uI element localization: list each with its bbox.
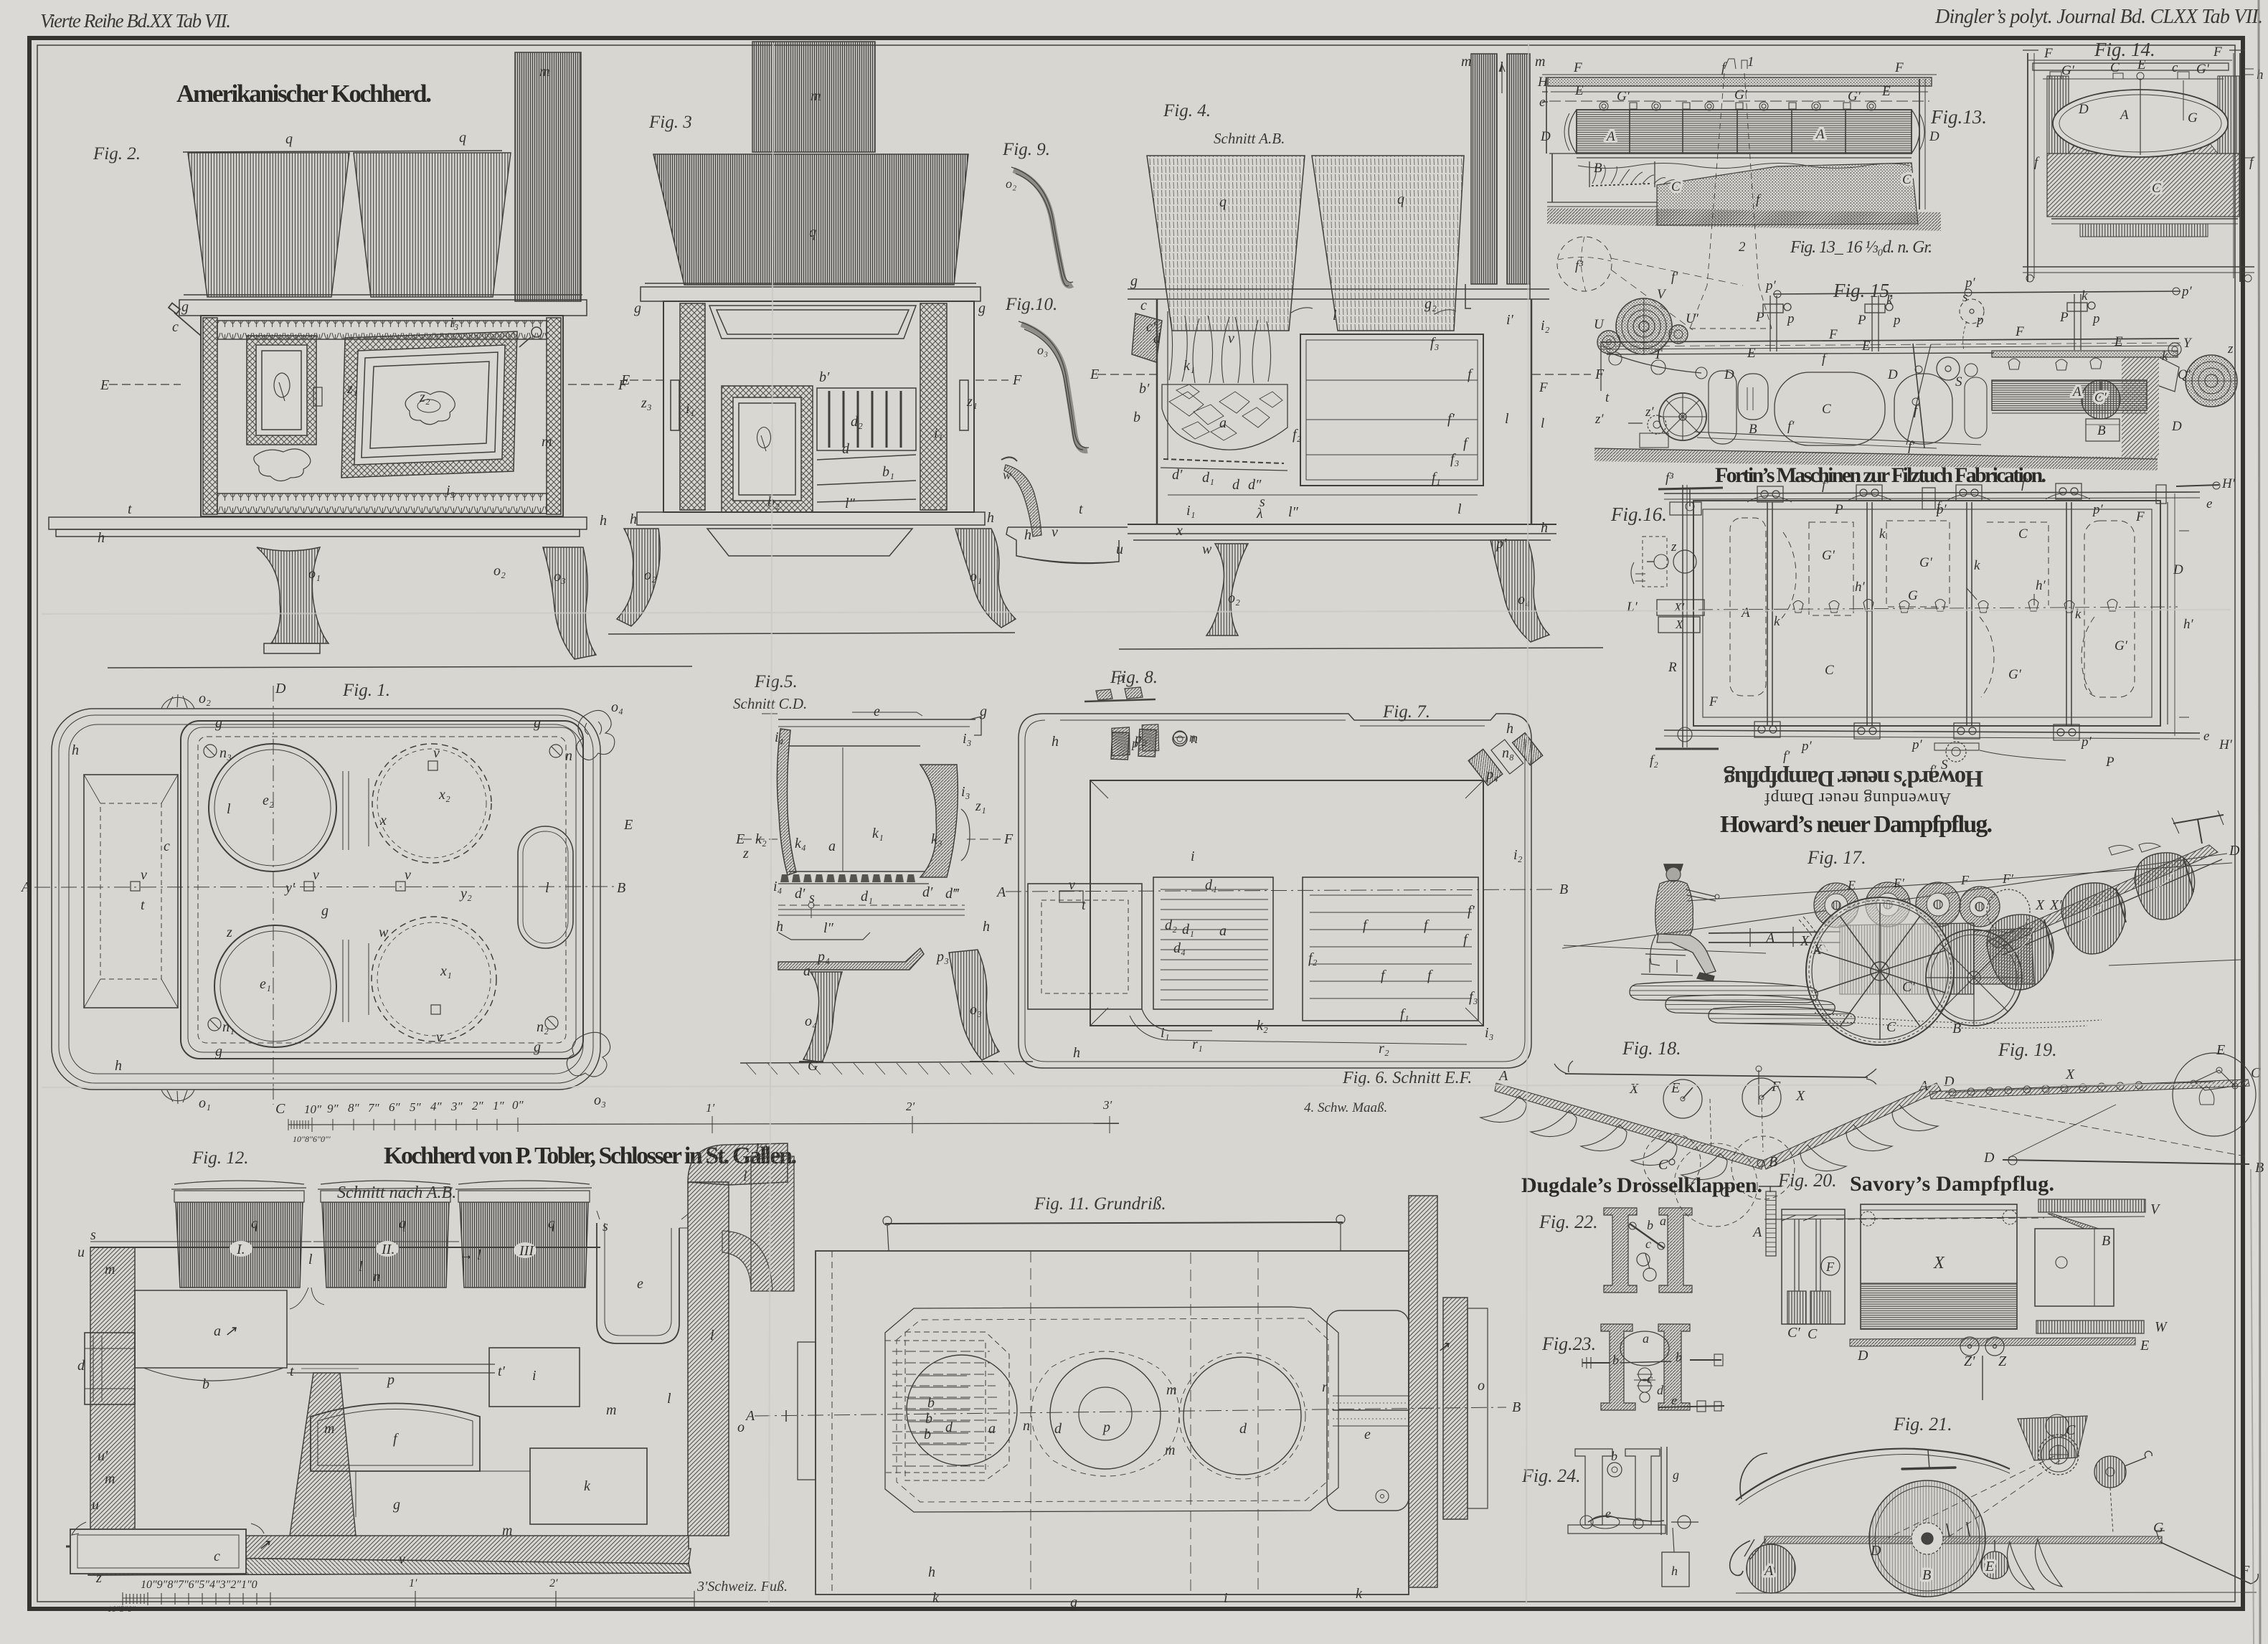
svg-text:k: k bbox=[1356, 1586, 1363, 1602]
svg-text:D: D bbox=[1857, 1348, 1868, 1364]
svg-text:b₁: b₁ bbox=[882, 464, 894, 480]
svg-text:f′: f′ bbox=[1783, 749, 1790, 764]
svg-text:q: q bbox=[1397, 192, 1404, 207]
svg-text:↗: ↗ bbox=[258, 1537, 270, 1553]
svg-text:e₂: e₂ bbox=[263, 793, 274, 808]
svg-text:F: F bbox=[1594, 367, 1605, 382]
svg-text:l″: l″ bbox=[845, 496, 856, 511]
svg-text:m: m bbox=[606, 1402, 616, 1418]
svg-text:B: B bbox=[1749, 422, 1757, 437]
svg-text:i₁: i₁ bbox=[1186, 503, 1196, 519]
svg-text:n: n bbox=[565, 748, 572, 764]
svg-text:Fig.10.: Fig.10. bbox=[1005, 295, 1057, 314]
svg-text:B: B bbox=[1922, 1567, 1931, 1583]
svg-text:p: p bbox=[1116, 670, 1124, 684]
svg-text:t: t bbox=[1082, 897, 1086, 913]
svg-text:f₁: f₁ bbox=[1432, 470, 1441, 486]
svg-text:h: h bbox=[1024, 527, 1031, 543]
svg-text:E: E bbox=[1881, 84, 1891, 99]
svg-text:i₂: i₂ bbox=[1541, 318, 1550, 334]
svg-text:d: d bbox=[1153, 331, 1161, 346]
svg-text:t′: t′ bbox=[498, 1364, 506, 1379]
svg-text:C: C bbox=[2110, 60, 2120, 75]
svg-text:Fig. 12.: Fig. 12. bbox=[192, 1148, 248, 1168]
svg-text:l: l bbox=[308, 1252, 313, 1267]
svg-text:h: h bbox=[1052, 734, 1059, 750]
svg-text:f³: f³ bbox=[1665, 471, 1673, 486]
svg-text:u′: u′ bbox=[98, 1448, 108, 1464]
svg-text:d′: d′ bbox=[795, 886, 805, 902]
svg-text:p′: p′ bbox=[1764, 278, 1777, 293]
svg-text:d₁: d₁ bbox=[1205, 877, 1217, 893]
svg-text:o: o bbox=[1478, 1378, 1485, 1394]
svg-text:G′: G′ bbox=[1617, 89, 1630, 104]
svg-text:10″5″0″: 10″5″0″ bbox=[108, 1604, 136, 1614]
svg-text:f′: f′ bbox=[1822, 478, 1829, 493]
svg-text:Fig. 20.: Fig. 20. bbox=[1777, 1170, 1837, 1191]
svg-text:III: III bbox=[519, 1243, 534, 1259]
svg-text:A: A bbox=[20, 879, 31, 895]
svg-text:p: p bbox=[1102, 1419, 1110, 1435]
svg-text:Schnitt nach A.B.: Schnitt nach A.B. bbox=[337, 1184, 456, 1202]
svg-text:c: c bbox=[172, 319, 179, 335]
svg-text:i₃: i₃ bbox=[963, 731, 972, 747]
svg-text:l ↑: l ↑ bbox=[755, 1141, 770, 1157]
svg-text:Fig. 22.: Fig. 22. bbox=[1539, 1211, 1598, 1232]
svg-text:Schnitt A.B.: Schnitt A.B. bbox=[1214, 130, 1285, 147]
svg-text:Z: Z bbox=[1998, 1354, 2007, 1369]
svg-text:0″: 0″ bbox=[512, 1098, 524, 1112]
svg-text:F: F bbox=[1894, 60, 1904, 75]
svg-text:m: m bbox=[105, 1471, 115, 1487]
svg-text:G′: G′ bbox=[2115, 638, 2128, 653]
svg-text:X′: X′ bbox=[1673, 600, 1684, 614]
svg-text:F: F bbox=[1573, 60, 1582, 75]
svg-text:T: T bbox=[1654, 347, 1663, 362]
svg-text:v: v bbox=[1228, 331, 1234, 346]
svg-text:P: P bbox=[2059, 310, 2069, 325]
svg-text:l: l bbox=[1499, 60, 1503, 75]
svg-text:F: F bbox=[2135, 509, 2145, 524]
svg-text:i′: i′ bbox=[1506, 312, 1514, 328]
svg-text:s: s bbox=[603, 1219, 608, 1234]
svg-text:C′: C′ bbox=[2094, 390, 2107, 405]
svg-text:a: a bbox=[1660, 1214, 1666, 1228]
svg-text:i₄: i₄ bbox=[773, 879, 783, 894]
svg-text:E: E bbox=[2140, 1338, 2149, 1354]
svg-text:E: E bbox=[620, 372, 630, 388]
svg-text:Fig. 7.: Fig. 7. bbox=[1382, 702, 1430, 722]
svg-text:Fig. 6. Schnitt E.F.: Fig. 6. Schnitt E.F. bbox=[1342, 1069, 1472, 1087]
svg-text:Fig. 1.: Fig. 1. bbox=[342, 681, 390, 700]
svg-text:A: A bbox=[2119, 108, 2129, 123]
svg-text:D: D bbox=[1887, 367, 1898, 382]
svg-text:e: e bbox=[2206, 496, 2212, 511]
svg-text:F: F bbox=[1709, 694, 1718, 709]
svg-text:6″: 6″ bbox=[389, 1100, 401, 1114]
svg-text:i₃: i₃ bbox=[446, 483, 455, 499]
svg-text:E: E bbox=[623, 817, 633, 833]
svg-text:A: A bbox=[1815, 127, 1825, 142]
svg-text:y₂: y₂ bbox=[459, 886, 472, 902]
svg-text:b₂: b₂ bbox=[767, 494, 780, 510]
svg-text:B: B bbox=[1512, 1399, 1521, 1415]
svg-text:z′: z′ bbox=[1594, 412, 1604, 427]
svg-text:l: l bbox=[1457, 501, 1462, 517]
svg-text:b: b bbox=[1612, 1353, 1619, 1367]
svg-text:A: A bbox=[1763, 1563, 1774, 1579]
svg-text:d₁: d₁ bbox=[1182, 922, 1194, 937]
svg-text:n₂: n₂ bbox=[537, 1019, 549, 1035]
svg-text:t: t bbox=[1079, 501, 1083, 517]
svg-text:o₃: o₃ bbox=[1037, 343, 1048, 357]
svg-text:g: g bbox=[534, 715, 541, 731]
svg-text:H: H bbox=[1537, 75, 1549, 90]
svg-text:z₃: z₃ bbox=[641, 395, 652, 411]
svg-text:C: C bbox=[1671, 179, 1681, 194]
svg-text:p₃: p₃ bbox=[935, 949, 949, 965]
svg-text:a: a bbox=[1643, 1331, 1649, 1346]
svg-text:b: b bbox=[1676, 1350, 1682, 1364]
svg-text:D: D bbox=[1983, 1150, 1995, 1166]
svg-text:p′: p′ bbox=[2180, 284, 2193, 299]
svg-text:w: w bbox=[1003, 468, 1011, 482]
svg-text:x: x bbox=[1176, 523, 1183, 539]
svg-text:u: u bbox=[1116, 542, 1123, 557]
svg-text:h′: h′ bbox=[2036, 578, 2046, 593]
svg-text:q: q bbox=[399, 1216, 406, 1232]
svg-text:S: S bbox=[1955, 374, 1962, 389]
svg-text:X: X bbox=[1813, 942, 1823, 958]
svg-text:b′: b′ bbox=[1139, 381, 1150, 397]
svg-text:l: l bbox=[667, 1391, 671, 1407]
svg-text:a: a bbox=[988, 1421, 996, 1437]
svg-text:f₁: f₁ bbox=[1400, 1006, 1409, 1022]
svg-text:A: A bbox=[1752, 1224, 1762, 1240]
svg-text:Fig. 24.: Fig. 24. bbox=[1521, 1465, 1581, 1486]
svg-text:i₂: i₂ bbox=[1513, 847, 1523, 863]
svg-text:h: h bbox=[1073, 1045, 1080, 1061]
svg-text:e₁: e₁ bbox=[260, 976, 271, 992]
svg-text:Fig.16.: Fig.16. bbox=[1610, 504, 1667, 525]
svg-text:k₁: k₁ bbox=[872, 826, 884, 841]
svg-text:d‴: d‴ bbox=[945, 886, 960, 902]
svg-text:o₁: o₁ bbox=[308, 566, 321, 582]
svg-text:l: l bbox=[743, 1168, 747, 1184]
svg-text:Fig. 19.: Fig. 19. bbox=[1998, 1039, 2057, 1060]
svg-text:d: d bbox=[77, 1358, 85, 1374]
svg-text:C′: C′ bbox=[1787, 1325, 1800, 1341]
svg-text:k: k bbox=[2082, 288, 2088, 303]
svg-text:o₃: o₃ bbox=[554, 569, 566, 585]
svg-text:E: E bbox=[1671, 1080, 1680, 1096]
svg-text:4″: 4″ bbox=[430, 1100, 443, 1113]
svg-text:o₄: o₄ bbox=[611, 699, 623, 715]
svg-text:G′: G′ bbox=[1919, 555, 1933, 570]
svg-text:b: b bbox=[1133, 410, 1140, 425]
svg-text:2′: 2′ bbox=[906, 1100, 915, 1113]
svg-text:p′: p′ bbox=[1935, 502, 1947, 517]
svg-text:i₃: i₃ bbox=[1485, 1025, 1494, 1041]
svg-text:b′: b′ bbox=[819, 369, 830, 385]
svg-text:f₃: f₃ bbox=[1450, 451, 1460, 467]
svg-text:v: v bbox=[399, 1551, 405, 1567]
svg-text:k₂: k₂ bbox=[1257, 1018, 1268, 1034]
svg-text:G′: G′ bbox=[2061, 63, 2075, 78]
svg-text:v: v bbox=[405, 867, 411, 883]
svg-text:z: z bbox=[95, 1570, 102, 1586]
svg-text:f′: f′ bbox=[1447, 411, 1455, 427]
svg-text:E: E bbox=[735, 831, 745, 847]
svg-text:Fig.23.: Fig.23. bbox=[1541, 1333, 1596, 1354]
svg-text:A: A bbox=[1918, 1078, 1929, 1094]
svg-text:2′: 2′ bbox=[549, 1577, 558, 1589]
svg-text:c: c bbox=[164, 838, 170, 854]
svg-text:a: a bbox=[803, 963, 811, 979]
svg-text:g: g bbox=[181, 299, 189, 315]
svg-text:f₂: f₂ bbox=[1293, 427, 1302, 443]
svg-text:D: D bbox=[2171, 419, 2182, 434]
svg-text:e: e bbox=[1364, 1427, 1371, 1442]
svg-text:E′: E′ bbox=[1893, 876, 1905, 890]
svg-text:d: d bbox=[1232, 477, 1240, 493]
svg-text:W: W bbox=[2155, 1319, 2168, 1335]
svg-text:C: C bbox=[1902, 172, 1912, 187]
svg-text:Schnitt C.D.: Schnitt C.D. bbox=[733, 695, 807, 712]
svg-text:g₂: g₂ bbox=[1424, 296, 1437, 312]
svg-text:d: d bbox=[1054, 1421, 1062, 1437]
svg-text:X: X bbox=[2065, 1067, 2075, 1082]
svg-text:u: u bbox=[92, 1497, 99, 1513]
svg-text:h: h bbox=[928, 1564, 935, 1580]
svg-text:X′: X′ bbox=[2049, 897, 2062, 913]
svg-text:z′: z′ bbox=[1645, 405, 1654, 420]
svg-text:A: A bbox=[2071, 384, 2082, 400]
svg-text:m: m bbox=[811, 88, 821, 104]
svg-text:q: q bbox=[1219, 194, 1227, 210]
svg-text:z₁: z₁ bbox=[966, 394, 978, 410]
svg-text:A: A bbox=[1740, 605, 1750, 620]
svg-text:m: m bbox=[1165, 1442, 1175, 1458]
svg-text:o₂: o₂ bbox=[199, 691, 211, 707]
svg-text:e: e bbox=[637, 1276, 643, 1292]
svg-text:F′: F′ bbox=[2002, 871, 2014, 886]
svg-text:H′: H′ bbox=[2219, 737, 2233, 752]
svg-text:a: a bbox=[1219, 415, 1227, 431]
svg-text:9″: 9″ bbox=[327, 1102, 339, 1115]
svg-text:c: c bbox=[1647, 1371, 1653, 1386]
svg-text:4. Schw. Maaß.: 4. Schw. Maaß. bbox=[1304, 1100, 1387, 1115]
svg-text:q: q bbox=[285, 131, 293, 147]
svg-text:d″: d″ bbox=[1248, 477, 1262, 493]
svg-text:c: c bbox=[214, 1549, 220, 1564]
svg-text:g: g bbox=[1673, 1468, 1679, 1482]
svg-text:w: w bbox=[1202, 542, 1212, 557]
svg-text:o₄: o₄ bbox=[805, 1014, 817, 1029]
svg-text:d: d bbox=[945, 1419, 953, 1435]
svg-text:Fig.5.: Fig.5. bbox=[754, 672, 798, 691]
svg-text:m: m bbox=[1535, 54, 1545, 70]
svg-text:v: v bbox=[436, 1029, 443, 1045]
svg-text:F: F bbox=[1960, 873, 1970, 887]
svg-text:D: D bbox=[1870, 1543, 1881, 1559]
svg-text:n₁: n₁ bbox=[222, 1019, 235, 1035]
svg-text:g: g bbox=[978, 301, 986, 316]
svg-text:k: k bbox=[584, 1478, 591, 1494]
svg-text:k₄: k₄ bbox=[795, 836, 806, 851]
svg-text:F: F bbox=[2213, 44, 2222, 60]
svg-text:c: c bbox=[1645, 1237, 1651, 1251]
svg-text:b: b bbox=[925, 1411, 932, 1427]
svg-text:k₁: k₁ bbox=[1183, 358, 1195, 374]
svg-text:F: F bbox=[2043, 46, 2053, 61]
svg-text:y′: y′ bbox=[284, 880, 296, 896]
svg-text:o₁: o₁ bbox=[970, 569, 982, 585]
svg-text:c: c bbox=[2172, 60, 2178, 75]
svg-text:Anwendung neuer Dampf: Anwendung neuer Dampf bbox=[1764, 789, 1951, 808]
svg-text:z₁: z₁ bbox=[346, 381, 358, 397]
svg-text:C: C bbox=[2018, 526, 2028, 542]
svg-text:k: k bbox=[1774, 614, 1780, 629]
svg-text:h: h bbox=[983, 919, 990, 935]
svg-text:F: F bbox=[2015, 324, 2024, 339]
svg-text:F: F bbox=[1825, 1260, 1835, 1274]
svg-text:m: m bbox=[324, 1421, 334, 1437]
svg-text:E: E bbox=[1847, 878, 1856, 892]
svg-text:1: 1 bbox=[1747, 55, 1754, 70]
svg-text:F: F bbox=[1771, 1079, 1781, 1095]
svg-text:U′: U′ bbox=[1686, 311, 1699, 326]
svg-text:Fig. 15.: Fig. 15. bbox=[1833, 280, 1894, 301]
svg-text:i₁: i₁ bbox=[686, 401, 695, 417]
svg-text:Fig. 4.: Fig. 4. bbox=[1163, 101, 1211, 121]
svg-text:l: l bbox=[1505, 411, 1509, 427]
svg-text:g: g bbox=[1070, 1595, 1077, 1610]
svg-text:g: g bbox=[215, 715, 222, 731]
svg-text:F: F bbox=[1539, 380, 1548, 395]
svg-text:s: s bbox=[1962, 290, 1967, 305]
svg-text:8″: 8″ bbox=[348, 1101, 360, 1115]
svg-text:l: l bbox=[545, 880, 549, 896]
svg-text:k: k bbox=[932, 1590, 940, 1606]
svg-text:k₂: k₂ bbox=[755, 831, 767, 847]
svg-text:f′: f′ bbox=[1787, 419, 1795, 434]
svg-text:b: b bbox=[927, 1395, 935, 1411]
svg-text:i: i bbox=[1224, 1590, 1228, 1606]
svg-text:f′: f′ bbox=[1929, 763, 1937, 778]
svg-text:k: k bbox=[2162, 349, 2168, 364]
svg-text:L′: L′ bbox=[1626, 600, 1638, 615]
svg-text:h: h bbox=[2257, 67, 2264, 82]
svg-text:h′: h′ bbox=[2183, 617, 2194, 632]
svg-text:A: A bbox=[745, 1408, 755, 1424]
svg-text:G′: G′ bbox=[2008, 667, 2022, 682]
svg-text:3″: 3″ bbox=[450, 1100, 463, 1113]
svg-text:g: g bbox=[1130, 273, 1138, 289]
svg-text:p′: p′ bbox=[1800, 739, 1813, 754]
svg-text:i: i bbox=[1191, 849, 1195, 864]
svg-text:2: 2 bbox=[1739, 240, 1746, 255]
svg-text:A: A bbox=[996, 884, 1006, 900]
svg-text:G′: G′ bbox=[1848, 89, 1861, 104]
svg-text:C: C bbox=[1825, 663, 1834, 678]
svg-text:G: G bbox=[2188, 110, 2198, 126]
svg-text:s: s bbox=[90, 1227, 96, 1243]
svg-text:Dugdale’s Drosselklappen.: Dugdale’s Drosselklappen. bbox=[1521, 1173, 1762, 1197]
svg-text:I.: I. bbox=[236, 1242, 245, 1257]
svg-text:R: R bbox=[1668, 660, 1677, 675]
svg-text:p: p bbox=[2092, 311, 2100, 326]
svg-text:f₂: f₂ bbox=[1650, 753, 1658, 768]
svg-text:p′: p′ bbox=[1964, 275, 1976, 290]
svg-text:k: k bbox=[1974, 558, 1980, 573]
svg-text:X: X bbox=[1933, 1254, 1945, 1272]
svg-text:h: h bbox=[600, 513, 607, 529]
svg-text:↗: ↗ bbox=[1437, 1339, 1450, 1355]
svg-text:a ↗: a ↗ bbox=[214, 1323, 237, 1339]
svg-text:D: D bbox=[1540, 129, 1551, 144]
svg-text:C: C bbox=[1658, 1157, 1668, 1173]
svg-text:f₃: f₃ bbox=[1469, 989, 1478, 1005]
svg-text:v: v bbox=[141, 867, 147, 883]
svg-text:d: d bbox=[1239, 1421, 1247, 1437]
svg-text:B: B bbox=[1559, 882, 1568, 897]
svg-text:f₂: f₂ bbox=[1308, 950, 1318, 966]
svg-text:b: b bbox=[1611, 1449, 1617, 1463]
svg-text:d: d bbox=[842, 441, 850, 457]
svg-text:D: D bbox=[275, 681, 286, 696]
svg-text:U: U bbox=[1594, 317, 1605, 332]
svg-text:i₃: i₃ bbox=[961, 784, 970, 800]
svg-text:C: C bbox=[2066, 1422, 2076, 1438]
svg-text:x: x bbox=[379, 813, 387, 828]
svg-text:o₃: o₃ bbox=[594, 1092, 606, 1108]
svg-text:g: g bbox=[634, 301, 641, 316]
svg-text:d: d bbox=[1657, 1383, 1664, 1397]
svg-text:Vierte Reihe Bd.XX Tab VII.: Vierte Reihe Bd.XX Tab VII. bbox=[40, 10, 231, 32]
svg-text:Z′: Z′ bbox=[1964, 1354, 1975, 1369]
svg-text:D: D bbox=[2078, 102, 2089, 117]
svg-text:b: b bbox=[924, 1427, 931, 1442]
svg-text:i₁: i₁ bbox=[1161, 1025, 1170, 1041]
svg-text:X: X bbox=[1795, 1088, 1805, 1104]
svg-text:h: h bbox=[1506, 721, 1513, 737]
svg-text:k: k bbox=[2075, 607, 2082, 622]
svg-text:v: v bbox=[1069, 877, 1075, 893]
svg-text:i: i bbox=[532, 1368, 537, 1384]
svg-text:P: P bbox=[1755, 310, 1764, 325]
svg-text:g: g bbox=[980, 704, 987, 719]
svg-text:h: h bbox=[1671, 1564, 1678, 1578]
svg-text:l″: l″ bbox=[823, 920, 834, 936]
svg-text:p′: p′ bbox=[1495, 536, 1507, 552]
svg-text:o₂: o₂ bbox=[1228, 590, 1240, 606]
svg-text:s: s bbox=[1260, 494, 1265, 510]
svg-text:G: G bbox=[1908, 588, 1918, 603]
svg-text:q: q bbox=[251, 1216, 258, 1232]
svg-text:Savory’s Dampfpflug.: Savory’s Dampfpflug. bbox=[1850, 1172, 2054, 1196]
svg-text:1′: 1′ bbox=[409, 1577, 417, 1589]
svg-text:t: t bbox=[141, 897, 145, 913]
svg-text:t: t bbox=[290, 1364, 294, 1379]
svg-text:m: m bbox=[1166, 1382, 1176, 1398]
svg-text:E: E bbox=[1985, 1559, 1994, 1574]
svg-text:f′: f′ bbox=[1671, 270, 1678, 285]
svg-text:X: X bbox=[1629, 1081, 1639, 1097]
svg-text:z₂: z₂ bbox=[419, 389, 430, 405]
svg-text:e: e bbox=[1605, 1506, 1611, 1521]
svg-text:p₄: p₄ bbox=[1485, 767, 1498, 783]
